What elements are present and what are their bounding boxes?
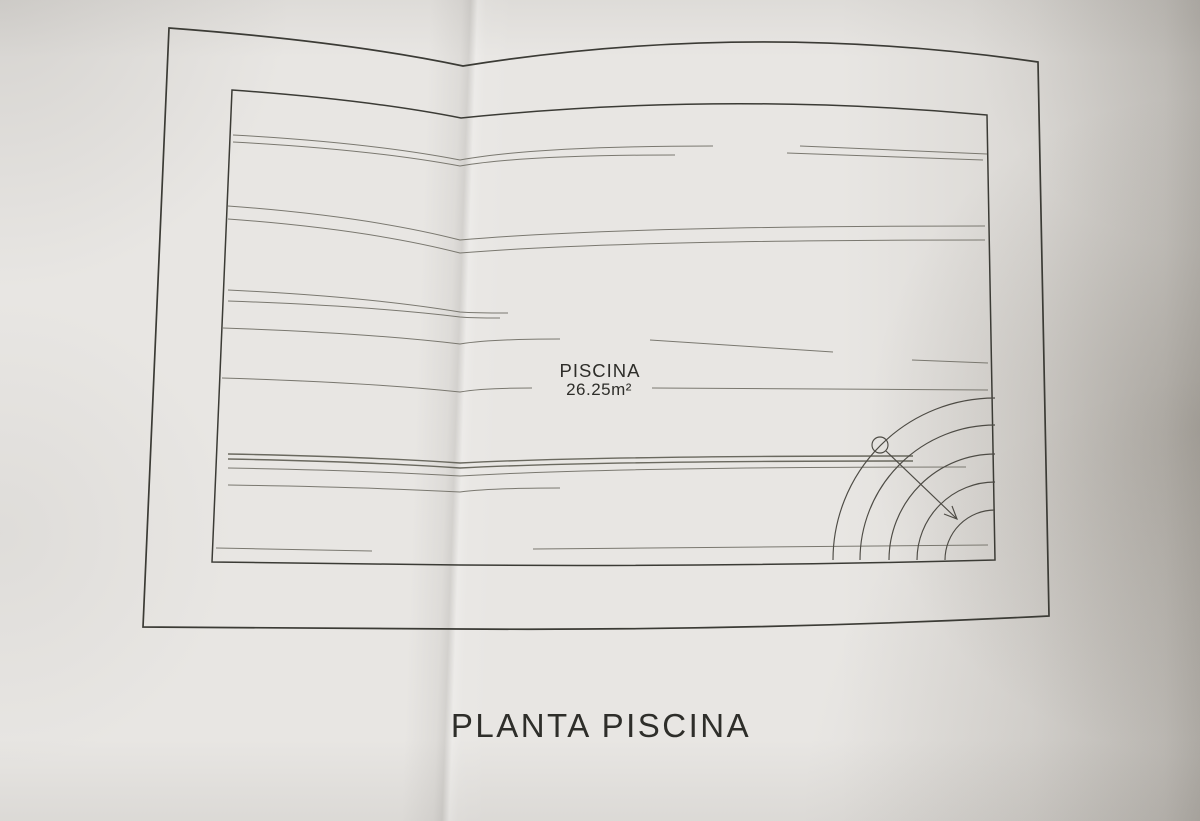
pool-label: PISCINA xyxy=(559,360,640,381)
drawing-caption: PLANTA PISCINA xyxy=(451,707,751,744)
plan-borders xyxy=(143,28,1049,629)
pool-plan-drawing: PISCINA 26.25m² PLANTA PISCINA xyxy=(0,0,1200,821)
stair-reference-marker xyxy=(872,437,957,519)
pool-area-label: 26.25m² xyxy=(566,380,632,399)
water-ripple-lines xyxy=(216,135,988,551)
photo-paper: PISCINA 26.25m² PLANTA PISCINA xyxy=(0,0,1200,821)
stair-arcs xyxy=(833,398,995,560)
